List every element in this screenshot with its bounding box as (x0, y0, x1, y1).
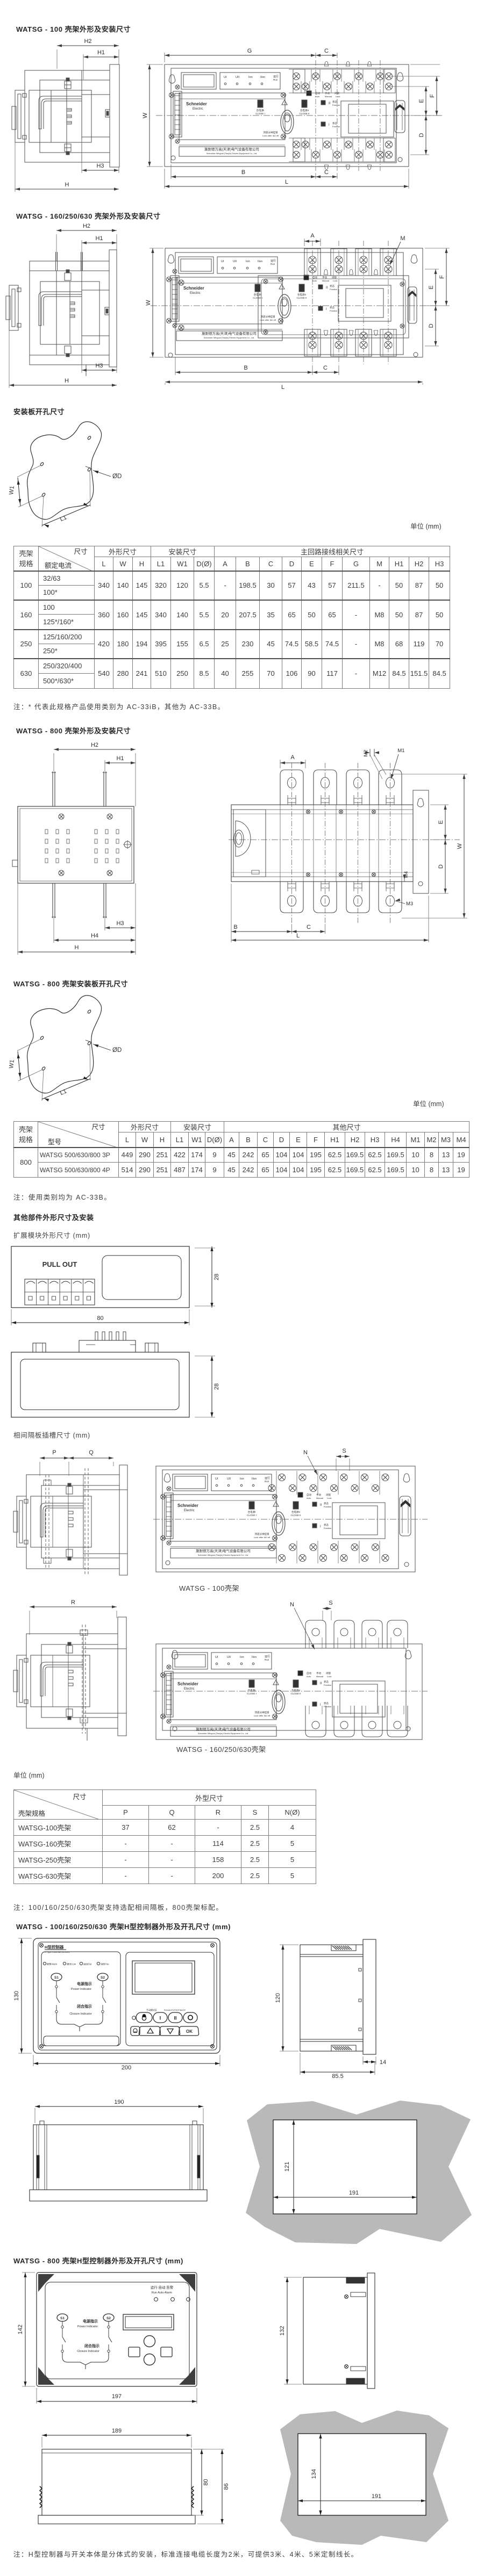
svg-text:W: W (145, 300, 152, 306)
svg-text:状态: 状态 (324, 1502, 329, 1505)
svg-text:状态: 状态 (330, 306, 334, 309)
svg-text:189: 189 (112, 2428, 122, 2434)
svg-text:ØD: ØD (112, 473, 122, 480)
svg-text:Schneider: Schneider (177, 1682, 198, 1686)
svg-text:Auto: Auto (315, 95, 320, 98)
svg-text:H3: H3 (116, 920, 124, 927)
svg-text:UI: UI (224, 76, 227, 79)
svg-text:CLOSE II: CLOSE II (290, 1692, 301, 1695)
svg-text:I: I (320, 1525, 321, 1528)
svg-text:CLOSE I: CLOSE I (253, 297, 262, 299)
svg-text:Schneider Wingoal (Tianjin) El: Schneider Wingoal (Tianjin) Electric Equ… (198, 1554, 249, 1556)
svg-text:14: 14 (380, 2059, 386, 2066)
svg-text:UII: UII (233, 260, 237, 263)
svg-text:Manual: Manual (316, 1675, 323, 1678)
svg-text:自动: 自动 (307, 1493, 311, 1497)
svg-text:CLOSE II: CLOSE II (296, 297, 307, 299)
svg-text:OK: OK (186, 2029, 193, 2034)
svg-text:RUN/AUTO/TEST/MUTE: RUN/AUTO/TEST/MUTE (164, 2009, 186, 2011)
svg-text:121: 121 (284, 2162, 290, 2171)
svg-text:尺寸: 尺寸 (91, 1123, 105, 1131)
svg-text:Position: Position (332, 125, 340, 128)
svg-text:施耐德万高(天津)电气设备有限公司: 施耐德万高(天津)电气设备有限公司 (196, 1548, 251, 1553)
svg-text:N: N (299, 1494, 301, 1497)
svg-text:Ion: Ion (246, 260, 250, 263)
svg-text:Run: Run (265, 1658, 269, 1661)
svg-text:H型控制器: H型控制器 (45, 1944, 64, 1950)
svg-text:H2: H2 (83, 223, 90, 229)
svg-text:W1: W1 (8, 1059, 16, 1069)
svg-text:B: B (241, 169, 245, 176)
svg-text:手动: 手动 (325, 91, 330, 95)
svg-text:施耐德万高(天津)电气设备有限公司: 施耐德万高(天津)电气设备有限公司 (202, 331, 257, 336)
svg-text:Run: Run (271, 263, 275, 265)
svg-text:IIon: IIon (252, 1477, 257, 1481)
svg-text:PULL OUT: PULL OUT (42, 1260, 77, 1268)
svg-text:CLOSE I: CLOSE I (247, 1514, 257, 1517)
svg-text:II: II (326, 286, 328, 290)
svg-text:合电源I: 合电源I (257, 109, 265, 112)
svg-text:手动: 手动 (322, 276, 327, 279)
svg-text:合电源I: 合电源I (248, 1510, 256, 1514)
svg-text:自动: 自动 (312, 276, 317, 279)
svg-text:Electric: Electric (193, 107, 203, 111)
svg-text:190: 190 (114, 2099, 124, 2105)
svg-text:施耐德万高(天津)电气设备有限公司: 施耐德万高(天津)电气设备有限公司 (204, 147, 259, 151)
svg-text:Run Auto Alarm: Run Auto Alarm (152, 2291, 173, 2294)
svg-text:闭锁: 闭锁 (326, 1671, 331, 1675)
svg-text:Lock after I&II off: Lock after I&II off (254, 1714, 271, 1717)
svg-text:H2: H2 (91, 742, 98, 748)
svg-text:运行: 运行 (265, 1476, 270, 1480)
svg-text:Lock after I&II off: Lock after I&II off (262, 134, 279, 137)
svg-text:M: M (400, 235, 405, 242)
svg-text:I: I (160, 2016, 161, 2022)
svg-text:合电源II: 合电源II (297, 293, 306, 297)
svg-text:B: B (233, 924, 237, 930)
svg-text:尺寸: 尺寸 (74, 548, 87, 555)
svg-text:Lock after I&II off: Lock after I&II off (260, 319, 276, 321)
svg-text:H3: H3 (95, 363, 103, 369)
svg-text:Auto: Auto (307, 1675, 311, 1678)
svg-text:132: 132 (279, 2326, 286, 2335)
svg-text:28: 28 (213, 1274, 220, 1280)
svg-text:E: E (428, 285, 435, 289)
svg-text:状态: 状态 (324, 1680, 329, 1683)
svg-text:返回Out: 返回Out (83, 1962, 92, 1966)
svg-text:Electric: Electric (190, 292, 201, 295)
svg-text:Ion: Ion (240, 1477, 244, 1481)
svg-text:N: N (299, 1672, 301, 1676)
svg-text:Ion: Ion (248, 76, 253, 79)
svg-text:Power Indicator: Power Indicator (77, 2325, 98, 2328)
svg-text:通讯Com: 通讯Com (67, 1962, 76, 1966)
svg-text:CLOSE II: CLOSE II (299, 112, 309, 115)
svg-text:S2: S2 (101, 1976, 105, 1980)
svg-text:W: W (142, 112, 148, 118)
svg-text:L: L (296, 933, 300, 939)
svg-text:手动模式区: 手动模式区 (146, 2008, 157, 2011)
svg-text:顶盖分闸挂锁: 顶盖分闸挂锁 (255, 1532, 269, 1536)
svg-text:UI: UI (215, 1477, 218, 1481)
svg-text:手动: 手动 (316, 1493, 321, 1497)
svg-text:Schneider: Schneider (183, 286, 204, 291)
svg-text:Electric: Electric (184, 1687, 195, 1691)
svg-text:Position: Position (330, 309, 337, 312)
svg-text:W: W (457, 843, 463, 849)
svg-text:I: I (326, 308, 327, 311)
svg-text:191: 191 (349, 2190, 359, 2196)
svg-text:L1: L1 (59, 1088, 68, 1096)
svg-text:120: 120 (275, 1993, 281, 2003)
svg-text:B: B (244, 365, 247, 371)
svg-text:合电源II: 合电源II (291, 1510, 300, 1514)
svg-text:80: 80 (97, 1315, 103, 1322)
svg-text:闭锁: 闭锁 (326, 1493, 331, 1497)
svg-text:E: E (418, 99, 425, 103)
svg-text:Schneider: Schneider (177, 1503, 198, 1508)
svg-text:N: N (290, 1601, 294, 1608)
svg-text:Schneider: Schneider (186, 102, 207, 106)
svg-text:C: C (324, 48, 329, 54)
svg-text:II: II (320, 1682, 322, 1685)
svg-text:Position: Position (324, 1705, 331, 1708)
svg-text:H1: H1 (95, 235, 103, 242)
svg-text:M3: M3 (406, 901, 413, 907)
svg-text:D: D (428, 323, 435, 328)
svg-text:手动: 手动 (316, 1671, 321, 1675)
svg-text:N: N (303, 1449, 308, 1456)
svg-text:施耐德万高(天津)电气设备有限公司: 施耐德万高(天津)电气设备有限公司 (196, 1727, 251, 1731)
svg-text:191: 191 (372, 2493, 381, 2500)
svg-text:Lock: Lock (336, 95, 340, 98)
svg-text:Position: Position (324, 1684, 331, 1686)
svg-text:S1: S1 (60, 2317, 65, 2320)
svg-text:型号: 型号 (48, 1138, 61, 1146)
svg-text:130: 130 (13, 1991, 20, 2001)
svg-text:CLOSE II: CLOSE II (290, 1514, 301, 1517)
svg-text:IIon: IIon (252, 1656, 257, 1659)
svg-text:合电源I: 合电源I (254, 293, 262, 297)
svg-text:运行: 运行 (265, 1655, 270, 1658)
svg-text:报警Alarm: 报警Alarm (47, 1962, 58, 1966)
svg-text:额定电流: 额定电流 (45, 561, 72, 569)
svg-text:W1: W1 (8, 486, 16, 495)
svg-text:ØD: ØD (112, 1047, 122, 1054)
svg-text:I: I (329, 124, 330, 127)
svg-text:F: F (429, 94, 436, 98)
svg-text:E: E (438, 820, 444, 824)
svg-text:II: II (320, 1504, 322, 1507)
svg-text:N: N (305, 277, 307, 280)
svg-text:Closure Indicator: Closure Indicator (69, 2012, 92, 2016)
svg-text:Run: Run (273, 78, 278, 81)
svg-text:UII: UII (227, 1477, 231, 1481)
svg-text:Electric: Electric (184, 1509, 195, 1512)
svg-text:合电源II: 合电源II (291, 1689, 300, 1692)
svg-text:消防Fire: 消防Fire (101, 1962, 109, 1966)
svg-text:A: A (310, 233, 315, 239)
svg-text:Ion: Ion (240, 1656, 244, 1659)
svg-text:Position: Position (324, 1505, 331, 1508)
svg-text:Lock: Lock (327, 1675, 331, 1678)
svg-text:电源指示: 电源指示 (83, 2319, 98, 2324)
svg-text:H4: H4 (91, 933, 98, 939)
svg-text:H: H (65, 182, 69, 188)
svg-text:H2: H2 (84, 38, 91, 45)
svg-text:I: I (320, 1704, 321, 1707)
svg-text:Position: Position (324, 1527, 331, 1529)
svg-text:状态: 状态 (324, 1701, 329, 1705)
svg-text:Manual: Manual (316, 1497, 323, 1499)
svg-text:UI: UI (221, 260, 224, 263)
svg-text:134: 134 (311, 2469, 317, 2479)
svg-text:C: C (323, 365, 328, 371)
svg-text:IIon: IIon (258, 260, 262, 263)
svg-text:状态: 状态 (324, 1523, 329, 1526)
svg-text:G: G (247, 48, 252, 54)
svg-text:状态: 状态 (332, 121, 337, 125)
svg-text:IIon: IIon (260, 76, 265, 79)
svg-text:D: D (418, 133, 425, 137)
svg-text:80: 80 (203, 2479, 209, 2485)
svg-text:C: C (307, 924, 311, 930)
svg-text:200: 200 (122, 2065, 131, 2071)
svg-text:H1: H1 (116, 755, 124, 762)
svg-text:Lock after I&II off: Lock after I&II off (254, 1536, 271, 1539)
svg-text:运行: 运行 (273, 75, 279, 78)
svg-text:闭锁: 闭锁 (332, 276, 337, 279)
svg-text:状态: 状态 (330, 284, 334, 287)
svg-text:Position: Position (330, 288, 337, 291)
svg-text:D: D (438, 864, 444, 869)
svg-text:Schneider Wingoal (Tianjin) El: Schneider Wingoal (Tianjin) Electric Equ… (207, 153, 258, 155)
svg-text:197: 197 (112, 2393, 122, 2400)
svg-text:H: H (65, 378, 69, 384)
svg-text:R: R (71, 1599, 75, 1606)
svg-text:Manual: Manual (325, 95, 332, 98)
svg-text:142: 142 (17, 2325, 24, 2334)
svg-text:H: H (75, 944, 79, 951)
svg-text:壳架规格: 壳架规格 (18, 1809, 46, 1817)
svg-text:合电源I: 合电源I (248, 1689, 256, 1692)
svg-text:S1: S1 (54, 1976, 59, 1980)
svg-text:L: L (285, 179, 288, 185)
svg-text:UII: UII (236, 76, 240, 79)
svg-text:Q: Q (89, 1449, 94, 1456)
svg-text:自动: 自动 (307, 1671, 311, 1675)
svg-text:P: P (52, 1449, 56, 1456)
svg-text:H3: H3 (96, 163, 104, 169)
svg-text:顶盖分闸挂锁: 顶盖分闸挂锁 (255, 1711, 269, 1714)
svg-text:H1: H1 (97, 49, 105, 56)
svg-text:Lock: Lock (327, 1497, 331, 1499)
svg-text:运行 自动 告警: 运行 自动 告警 (151, 2285, 174, 2290)
svg-text:Auto: Auto (307, 1497, 311, 1499)
svg-text:Schneider Wingoal (Tianjin) El: Schneider Wingoal (Tianjin) Electric Equ… (204, 337, 255, 339)
svg-text:UII: UII (227, 1656, 231, 1659)
svg-text:F: F (439, 275, 445, 279)
svg-text:L: L (281, 384, 284, 391)
svg-text:S: S (329, 1600, 332, 1606)
svg-text:闭合指示: 闭合指示 (84, 2343, 99, 2348)
svg-text:Lock: Lock (333, 279, 337, 282)
svg-text:A: A (290, 754, 295, 761)
svg-text:Run: Run (265, 1480, 269, 1483)
svg-text:Closure Indicator: Closure Indicator (77, 2350, 99, 2353)
svg-text:Position: Position (332, 104, 340, 106)
svg-text:M1: M1 (397, 748, 404, 754)
svg-text:顶盖分闸挂锁: 顶盖分闸挂锁 (261, 315, 275, 319)
svg-text:86: 86 (223, 2483, 230, 2490)
svg-text:顶盖分闸挂锁: 顶盖分闸挂锁 (264, 131, 278, 134)
svg-text:状态: 状态 (332, 100, 337, 103)
svg-text:28: 28 (213, 1383, 220, 1390)
svg-text:L1: L1 (59, 514, 68, 523)
svg-text:CLOSE I: CLOSE I (255, 112, 265, 115)
svg-text:Power Indicator: Power Indicator (71, 1988, 91, 1991)
svg-text:CLOSE I: CLOSE I (247, 1692, 257, 1695)
svg-text:S: S (342, 1448, 346, 1454)
svg-text:Schneider Wingoal (Tianjin) El: Schneider Wingoal (Tianjin) Electric Equ… (198, 1733, 249, 1735)
svg-text:85.5: 85.5 (332, 2073, 343, 2080)
svg-text:Auto: Auto (312, 279, 317, 282)
svg-text:II: II (174, 2016, 176, 2022)
svg-text:电源指示: 电源指示 (77, 1981, 92, 1986)
svg-text:运行: 运行 (271, 259, 276, 263)
svg-text:合电源II: 合电源II (300, 109, 309, 112)
svg-text:UI: UI (215, 1656, 218, 1659)
svg-text:Manual: Manual (322, 279, 329, 282)
svg-text:尺寸: 尺寸 (73, 1793, 86, 1801)
svg-text:S2: S2 (106, 2317, 111, 2320)
svg-text:II: II (329, 102, 331, 105)
svg-text:C: C (324, 169, 329, 176)
svg-text:自动: 自动 (315, 91, 320, 95)
svg-text:闭合指示: 闭合指示 (77, 2004, 92, 2009)
